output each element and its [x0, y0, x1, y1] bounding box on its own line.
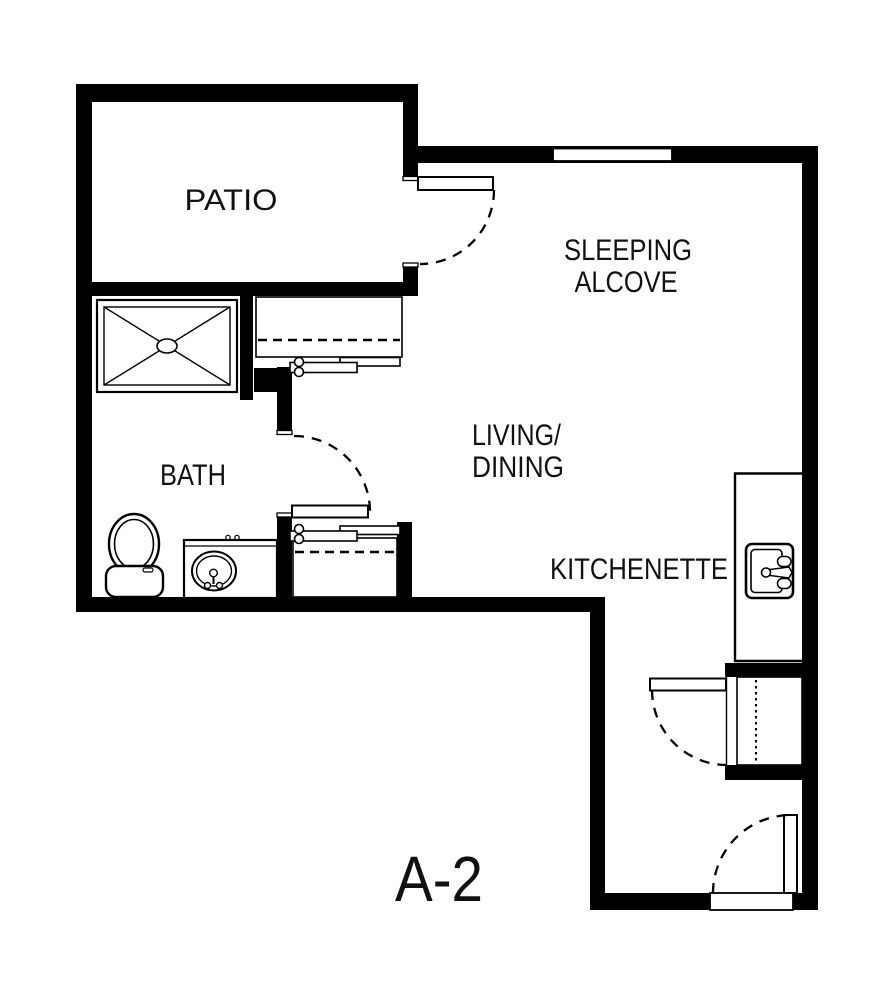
door-jamb	[277, 431, 292, 435]
closet-box	[737, 677, 802, 765]
wall-segment	[277, 367, 292, 432]
door-leaf	[418, 177, 493, 190]
door-swing-arc	[652, 690, 727, 765]
floor-plan-page: PATIO SLEEPING ALCOVE LIVING/ DINING BAT…	[0, 0, 894, 998]
door-leaf	[292, 506, 368, 518]
wall-segment	[76, 597, 605, 612]
wall-segment	[590, 597, 605, 910]
door-swing-arc	[420, 190, 494, 264]
door-swing-arc	[713, 815, 791, 893]
floor-plan: PATIO SLEEPING ALCOVE LIVING/ DINING BAT…	[0, 0, 894, 998]
room-label-kitchenette: KITCHENETTE	[550, 553, 728, 586]
faucet-lobe	[778, 579, 792, 589]
room-label-living-dining-line1: LIVING/	[472, 419, 562, 452]
room-label-sleeping-alcove-line2: ALCOVE	[575, 266, 678, 299]
wall-segment	[76, 84, 418, 102]
faucet-lever	[770, 567, 792, 578]
door-jamb	[403, 177, 418, 181]
room-label-living-dining-line2: DINING	[472, 451, 564, 484]
wall-segment	[725, 765, 818, 780]
wall-segment	[793, 893, 818, 910]
wall-segment	[76, 282, 418, 296]
door-leaf	[784, 815, 797, 893]
door-leaf	[650, 679, 726, 691]
shower-drain	[157, 339, 177, 353]
toilet-tank	[106, 566, 163, 597]
sliding-doors	[290, 358, 400, 377]
entry-threshold-icon	[710, 893, 793, 910]
shower-icon	[97, 300, 237, 392]
sliding-doors	[290, 525, 400, 544]
toilet-icon	[106, 514, 163, 597]
faucet-knob	[205, 583, 211, 589]
closet-box	[256, 297, 402, 357]
door-guide	[295, 525, 304, 534]
wall-segment	[240, 296, 253, 400]
wall-segment	[725, 663, 818, 677]
closet-door	[650, 679, 727, 766]
door-guide	[295, 535, 304, 544]
door-jamb	[277, 513, 292, 517]
patio-door	[403, 177, 494, 268]
room-label-patio: PATIO	[185, 184, 278, 217]
door-guide	[295, 358, 304, 367]
closet-box	[293, 538, 397, 597]
wall-segment	[277, 517, 292, 598]
room-label-bath: BATH	[160, 459, 226, 492]
faucet-knob	[210, 569, 218, 577]
wall-segment	[76, 84, 92, 612]
door-guide	[295, 368, 304, 377]
closet-3	[727, 677, 803, 765]
door-swing-arc	[294, 436, 370, 512]
wall-segment	[802, 146, 818, 910]
faucet-knob	[217, 583, 223, 589]
door-opening	[403, 180, 418, 264]
bath-door	[277, 431, 370, 518]
faucet-tap	[226, 535, 230, 539]
window-icon	[553, 149, 672, 162]
room-label-sleeping-alcove-line1: SLEEPING	[564, 234, 692, 267]
kitchen-sink-icon	[746, 544, 793, 598]
faucet-tap	[235, 535, 239, 539]
closet-1	[256, 297, 402, 377]
wall-segment	[590, 893, 710, 910]
closet-2	[290, 525, 400, 598]
wall-segment	[403, 84, 418, 180]
door-opening	[277, 432, 292, 517]
faucet-base	[762, 568, 771, 577]
door-jamb	[403, 263, 418, 267]
faucet-lobe	[778, 557, 792, 567]
entry-door	[710, 815, 797, 910]
unit-label: A-2	[395, 843, 483, 915]
bathroom-sink-icon	[184, 535, 277, 598]
toilet-flush-button	[143, 568, 153, 572]
